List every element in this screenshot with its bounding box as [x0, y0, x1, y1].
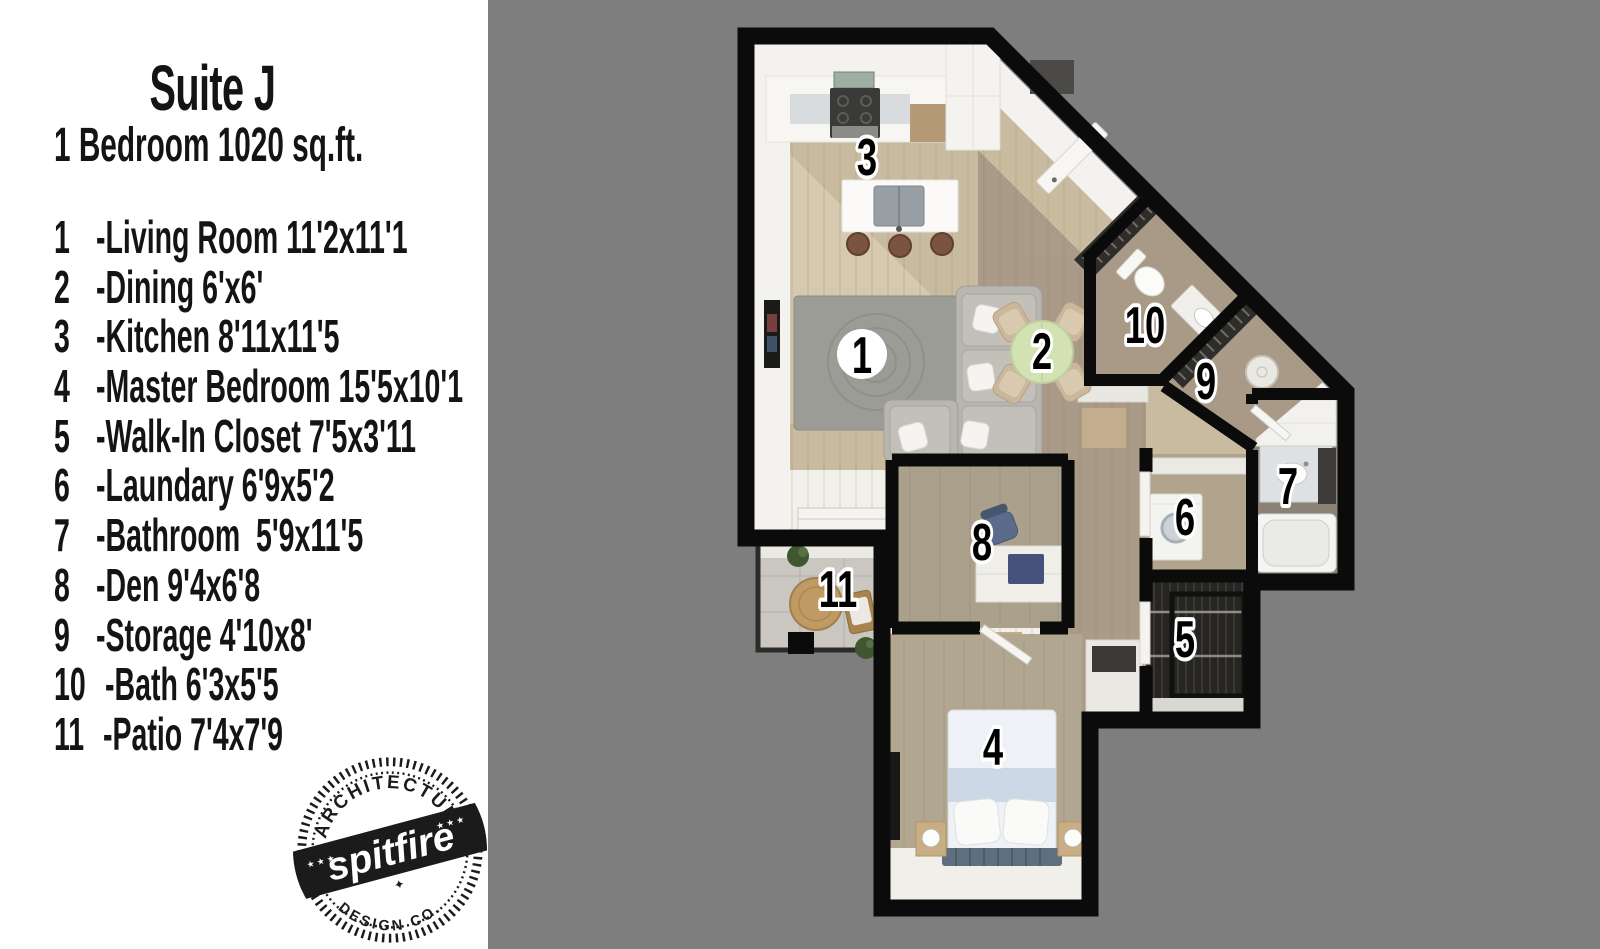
legend-number: 9 — [54, 611, 96, 661]
laundry-door — [1140, 472, 1150, 536]
svg-text:3: 3 — [857, 127, 877, 186]
svg-text:9: 9 — [1196, 351, 1216, 410]
legend-number: 7 — [54, 511, 96, 561]
patio-post — [788, 632, 814, 654]
svg-text:11: 11 — [819, 559, 857, 618]
svg-text:6: 6 — [1175, 487, 1195, 546]
throw-pillow — [960, 420, 990, 450]
svg-text:7: 7 — [1278, 456, 1298, 515]
bedside-lamp — [1064, 829, 1082, 847]
room-number-label: 7 — [1278, 456, 1298, 515]
page-subtitle: 1 Bedroom 1020 sq.ft. — [54, 118, 488, 174]
legend-row: 4-Master Bedroom 15'5x10'1 — [54, 362, 484, 412]
svg-text:10: 10 — [1125, 295, 1165, 354]
hall-doormat — [1082, 408, 1126, 448]
legend-label: -Master Bedroom 15'5x10'1 — [96, 362, 488, 412]
legend-row: 5-Walk-In Closet 7'5x3'11 — [54, 412, 484, 462]
legend-label: -Storage 4'10x8' — [96, 611, 445, 661]
floorplan-sheet: Suite J 1 Bedroom 1020 sq.ft. 1-Living R… — [0, 0, 1600, 949]
room-number-label: 11 — [819, 559, 857, 618]
den-laptop — [1008, 554, 1044, 584]
room-master-bedroom — [886, 634, 1142, 904]
room-number-label: 3 — [857, 127, 877, 186]
bar-stool — [889, 235, 911, 257]
legend-number: 4 — [54, 362, 96, 412]
legend-row: 9-Storage 4'10x8' — [54, 611, 484, 661]
legend-number: 6 — [54, 461, 96, 511]
legend-number: 8 — [54, 561, 96, 611]
legend-row: 7-Bathroom 5'9x11'5 — [54, 511, 484, 561]
legend-row: 1-Living Room 11'2x11'1 — [54, 213, 484, 263]
legend-number: 5 — [54, 412, 96, 462]
page-title: Suite J — [0, 54, 424, 122]
room-number-label: 6 — [1175, 487, 1195, 546]
svg-text:1: 1 — [852, 325, 872, 384]
bar-stool — [931, 233, 953, 255]
legend-label: -Bath 6'3x5'5 — [105, 660, 385, 710]
room-number-label: 5 — [1175, 609, 1195, 668]
svg-text:8: 8 — [972, 512, 992, 571]
svg-text:5: 5 — [1175, 609, 1195, 668]
legend-row: 6-Laundary 6'9x5'2 — [54, 461, 484, 511]
bar-stool — [847, 233, 869, 255]
legend-label: -Den 9'4x6'8 — [96, 561, 361, 611]
legend-row: 8-Den 9'4x6'8 — [54, 561, 484, 611]
water-heater — [1246, 356, 1278, 388]
bedside-lamp — [922, 829, 940, 847]
legend-row: 2-Dining 6'x6' — [54, 263, 484, 313]
throw-pillow — [966, 362, 995, 391]
room-number-label: 10 — [1125, 295, 1165, 354]
legend-number: 1 — [54, 213, 96, 263]
legend-row: 10-Bath 6'3x5'5 — [54, 660, 484, 710]
legend-label: -Bathroom 5'9x11'5 — [96, 511, 488, 561]
legend-label: -Living Room 11'2x11'1 — [96, 213, 488, 263]
legend-number: 11 — [54, 710, 103, 760]
room-laundry — [1146, 454, 1252, 576]
left-panel: Suite J 1 Bedroom 1020 sq.ft. 1-Living R… — [0, 0, 488, 949]
legend-label: -Kitchen 8'11x11'5 — [96, 312, 488, 362]
room-number-label: 4 — [983, 717, 1003, 776]
laundry-shelf — [1152, 458, 1246, 474]
legend-number: 10 — [54, 660, 105, 710]
legend-number: 2 — [54, 263, 96, 313]
room-number-label: 9 — [1196, 351, 1216, 410]
legend-row: 3-Kitchen 8'11x11'5 — [54, 312, 484, 362]
room-number-label: 8 — [972, 512, 992, 571]
bed-pillow — [953, 798, 1001, 846]
floor-plan: 1234567891011 — [488, 0, 1600, 949]
range-hood — [834, 72, 874, 88]
living-tv — [764, 300, 780, 368]
spitfire-logo: ARCHITECTURE ★ ★ ★ ★ ★ ★ spitfire ✦ DESI… — [292, 752, 488, 948]
closet-door — [1140, 602, 1150, 664]
room-number-label: 2 — [1032, 321, 1052, 380]
bed-headboard — [942, 848, 1062, 866]
room-walk-in-closet — [1146, 576, 1252, 714]
legend-label: -Dining 6'x6' — [96, 263, 366, 313]
bed-pillow — [1002, 798, 1050, 846]
legend-list: 1-Living Room 11'2x11'12-Dining 6'x6'3-K… — [54, 213, 484, 760]
legend-label: -Walk-In Closet 7'5x3'11 — [96, 412, 488, 462]
svg-text:4: 4 — [983, 717, 1003, 776]
legend-label: -Laundary 6'9x5'2 — [96, 461, 481, 511]
legend-number: 3 — [54, 312, 96, 362]
svg-text:2: 2 — [1032, 321, 1052, 380]
